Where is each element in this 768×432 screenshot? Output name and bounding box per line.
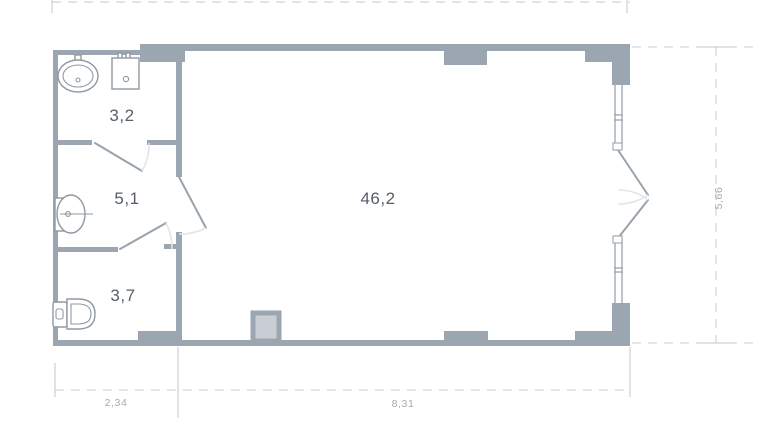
wall-bottom-pilaster-right — [444, 331, 488, 342]
dim-label-bottom-right: 8,31 — [392, 398, 415, 410]
oval-sink-icon — [58, 55, 98, 92]
dimension-lines — [52, 0, 756, 418]
wall-hall-wc — [58, 247, 118, 252]
wall-corner-top-right — [585, 44, 630, 85]
hallway-door-leaf — [179, 177, 206, 228]
dim-label-right: 5,66 — [713, 187, 725, 210]
toilet-tank — [53, 302, 67, 327]
wall-wc-door-jamb — [164, 244, 176, 249]
bathroom-door-arc — [142, 143, 149, 171]
balcony-door-leaf-top — [618, 150, 648, 195]
room-labels: 3,2 5,1 3,7 46,2 — [109, 106, 395, 305]
hallway-door-arc — [179, 228, 206, 234]
washing-machine-icon — [112, 53, 139, 89]
balcony-door-leaf-bottom — [618, 200, 648, 238]
room-label-wc: 3,7 — [110, 286, 135, 305]
wc-door-leaf — [120, 223, 166, 249]
window-bottom-endcap — [613, 236, 622, 243]
room-label-hallway: 5,1 — [114, 189, 139, 208]
wall-bottom-pilaster-left — [138, 331, 177, 342]
wall-top-pilaster — [444, 44, 487, 65]
wall-bathroom-hall-left — [58, 140, 92, 145]
floor-plan-drawing: 3,2 5,1 3,7 46,2 2,34 8,31 5,66 — [0, 0, 768, 432]
washbasin-icon — [55, 195, 93, 233]
washer-body — [112, 58, 139, 89]
ventilation-shaft — [253, 313, 279, 341]
window-top-endcap — [613, 143, 622, 150]
wall-interior-vertical-bottom — [176, 232, 182, 342]
toilet-icon — [53, 299, 95, 329]
wall-top-main — [185, 44, 587, 51]
floor-plan: 3,2 5,1 3,7 46,2 2,34 8,31 5,66 — [0, 0, 768, 432]
room-label-bathroom: 3,2 — [109, 106, 134, 125]
dim-label-bottom-left: 2,34 — [105, 397, 128, 409]
room-label-living: 46,2 — [360, 189, 395, 208]
wall-bathroom-hall-right — [147, 140, 176, 145]
bathroom-door-leaf — [95, 143, 142, 171]
wall-interior-vertical-top — [176, 51, 182, 177]
windows — [613, 85, 623, 307]
